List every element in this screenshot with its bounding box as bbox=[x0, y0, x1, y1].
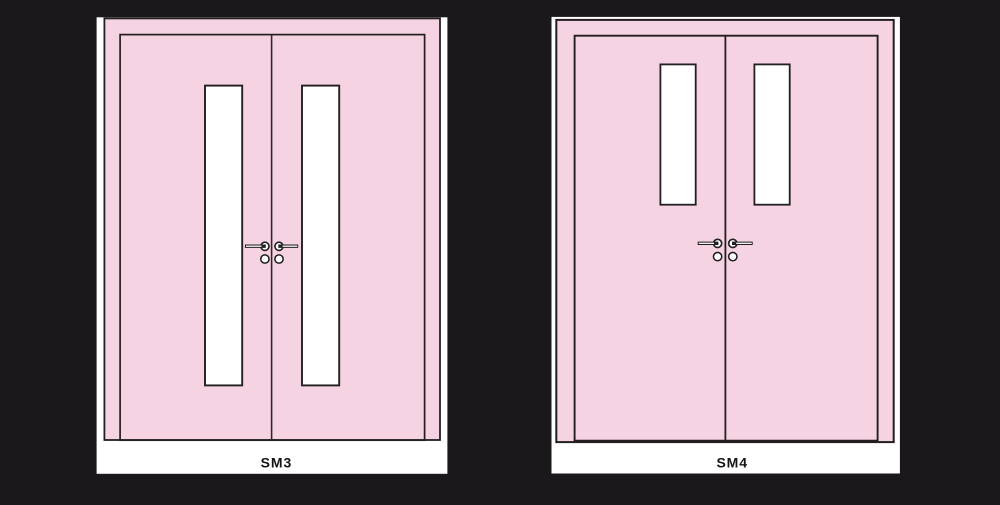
svg-text:SM4: SM4 bbox=[716, 455, 748, 471]
svg-text:SM3: SM3 bbox=[261, 455, 293, 471]
